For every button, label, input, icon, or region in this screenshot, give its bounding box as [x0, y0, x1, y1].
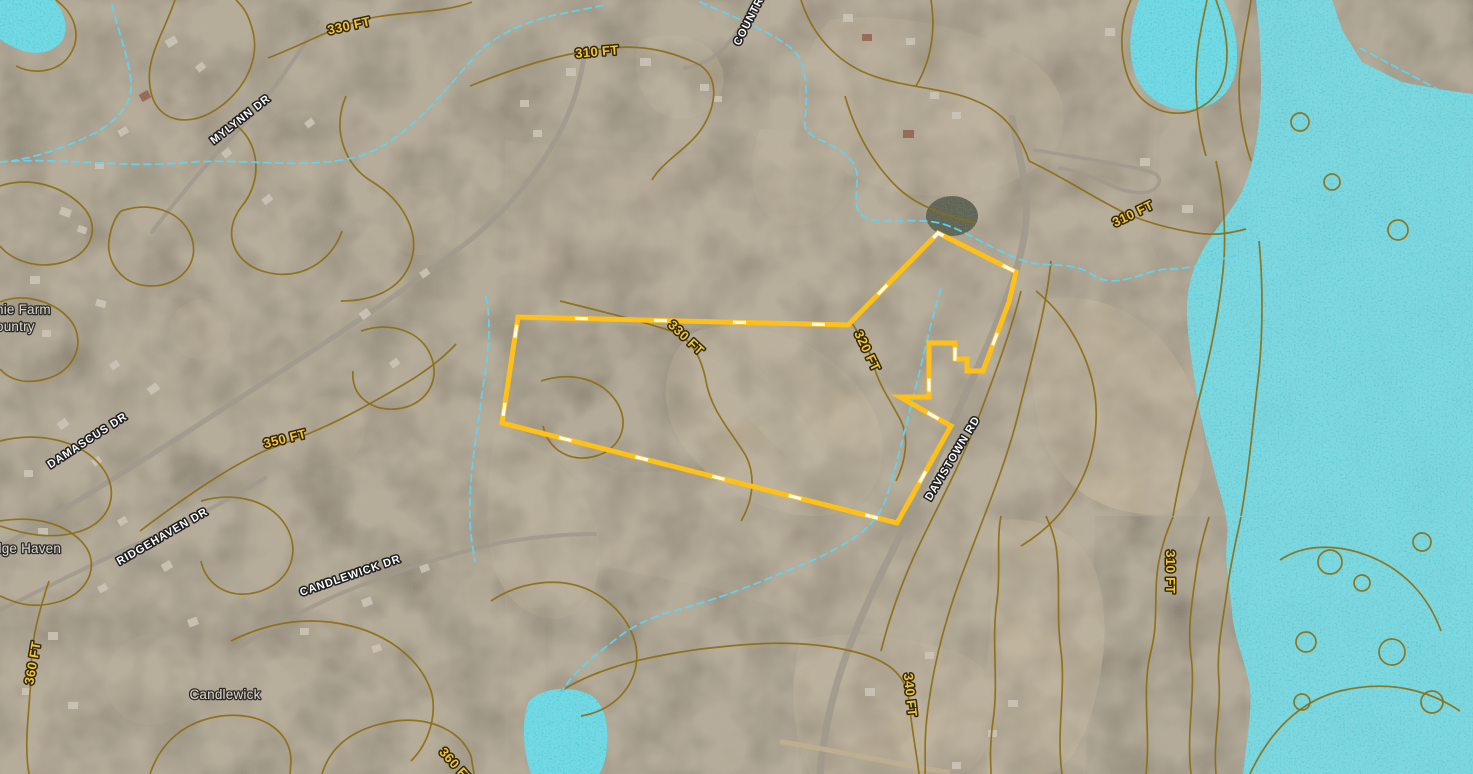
place-label-country: ountry	[0, 319, 35, 334]
place-label-ridgehaven: dge Haven	[0, 541, 61, 556]
contour-label-310ft: 310 FT	[1163, 550, 1178, 594]
place-label-farm: nie Farm	[0, 302, 51, 317]
place-label-candlewick: Candlewick	[189, 687, 260, 702]
map-canvas[interactable]: 330 FT 310 FT 310 FT 350 FT 330 FT 320 F…	[0, 0, 1473, 774]
